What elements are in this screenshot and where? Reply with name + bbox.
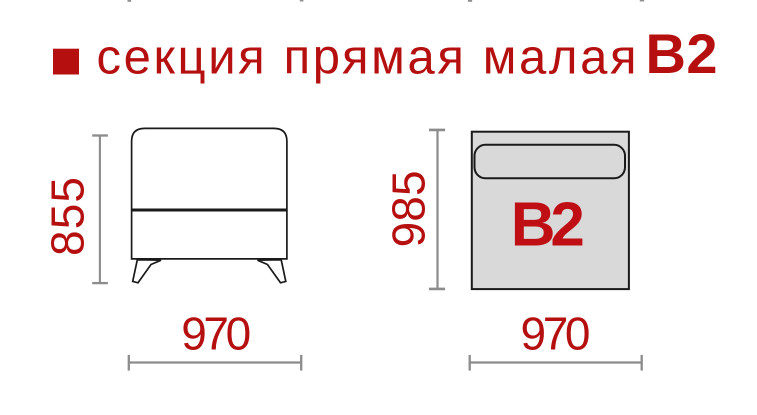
svg-text:B2: B2 [511,191,585,260]
svg-text:970: 970 [521,307,591,359]
svg-text:B2: B2 [646,22,718,85]
svg-text:985: 985 [383,170,435,247]
svg-text:970: 970 [181,308,251,360]
svg-text:секция прямая малая: секция прямая малая [97,31,637,85]
svg-text:855: 855 [42,177,94,256]
